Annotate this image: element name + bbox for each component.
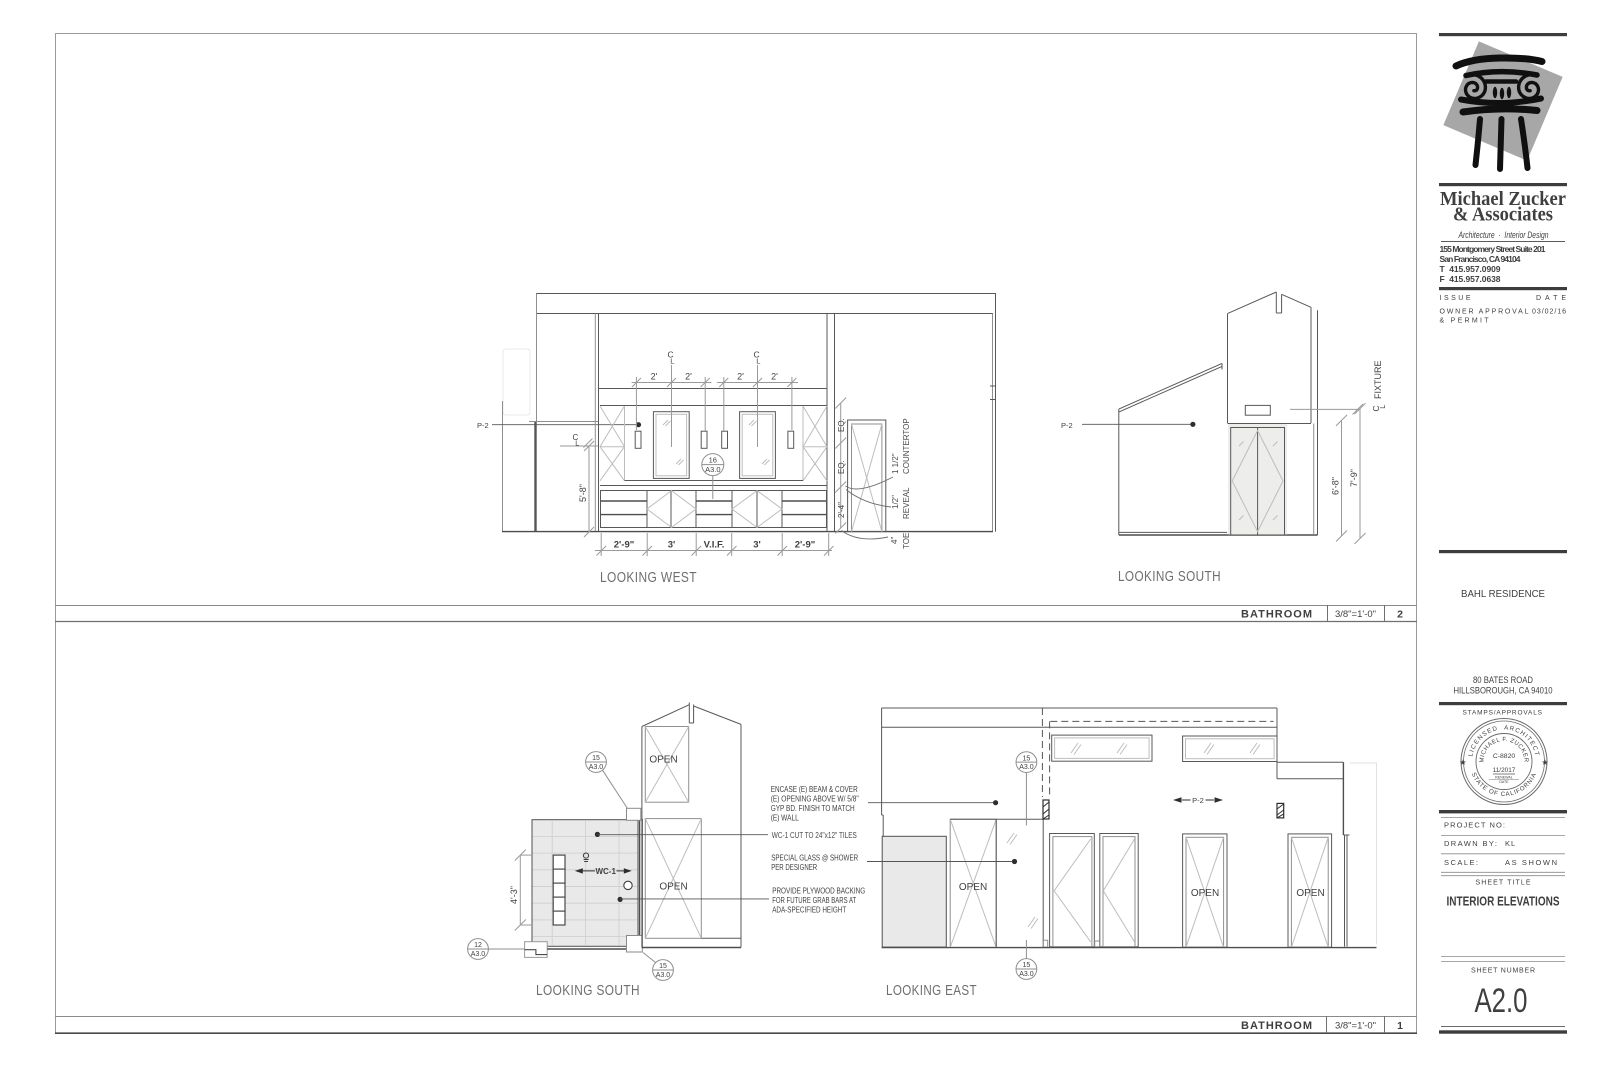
- svg-text:(E) OPENING ABOVE W/ 5/8": (E) OPENING ABOVE W/ 5/8": [771, 795, 859, 804]
- svg-text:ENCASE (E) BEAM & COVER: ENCASE (E) BEAM & COVER: [771, 785, 858, 794]
- svg-text:A3.0: A3.0: [705, 465, 720, 474]
- svg-text:7'-9": 7'-9": [1349, 469, 1359, 487]
- svg-text:2': 2': [737, 372, 744, 382]
- svg-text:155 Montgomery Street Suite 20: 155 Montgomery Street Suite 201: [1440, 244, 1546, 254]
- svg-text:EQ.: EQ.: [837, 460, 846, 474]
- svg-text:3': 3': [668, 540, 676, 551]
- svg-text:SCALE:: SCALE:: [1444, 858, 1478, 867]
- svg-text:OPEN: OPEN: [649, 755, 677, 766]
- svg-text:L: L: [575, 441, 579, 448]
- svg-text:4'-3": 4'-3": [509, 886, 519, 904]
- svg-text:3/8"=1'-0": 3/8"=1'-0": [1335, 1021, 1376, 1032]
- svg-text:OPEN: OPEN: [1296, 888, 1324, 899]
- svg-text:L: L: [670, 357, 674, 366]
- svg-text:DATE: DATE: [1536, 295, 1566, 302]
- svg-text:2': 2': [771, 372, 778, 382]
- svg-text:P-2: P-2: [477, 421, 489, 430]
- svg-text:5'-8": 5'-8": [578, 484, 588, 502]
- svg-text:3/8"=1'-0": 3/8"=1'-0": [1335, 609, 1376, 620]
- svg-text:REVEAL: REVEAL: [902, 487, 911, 519]
- svg-text:DATE: DATE: [1499, 780, 1509, 784]
- svg-text:BATHROOM: BATHROOM: [1241, 1020, 1313, 1032]
- svg-text:SHEET TITLE: SHEET TITLE: [1476, 880, 1531, 887]
- svg-text:OPEN: OPEN: [659, 882, 687, 893]
- svg-text:San Francisco, CA 94104: San Francisco, CA 94104: [1440, 254, 1521, 264]
- svg-text:P-2: P-2: [1061, 421, 1073, 430]
- svg-text:OPEN: OPEN: [959, 882, 987, 893]
- svg-text:★: ★: [1459, 758, 1466, 767]
- svg-text:A3.0: A3.0: [471, 951, 486, 958]
- svg-text:3': 3': [753, 540, 761, 551]
- svg-text:1/2": 1/2": [891, 495, 900, 509]
- svg-text:L: L: [1378, 405, 1387, 409]
- svg-text:OWNER APPROVAL: OWNER APPROVAL: [1440, 309, 1529, 316]
- svg-text:WC-1: WC-1: [595, 867, 616, 876]
- svg-text:LOOKING WEST: LOOKING WEST: [600, 569, 697, 586]
- svg-text:KL: KL: [1505, 839, 1516, 848]
- svg-text:GYP BD. FINISH TO MATCH: GYP BD. FINISH TO MATCH: [771, 804, 855, 813]
- svg-text:HILLSBOROUGH, CA 94010: HILLSBOROUGH, CA 94010: [1454, 686, 1553, 696]
- svg-text:V.I.F.: V.I.F.: [704, 540, 725, 551]
- svg-text:6'-8": 6'-8": [1331, 477, 1341, 495]
- svg-text:T 415.957.0909: T 415.957.0909: [1440, 264, 1501, 274]
- svg-text:15: 15: [1023, 962, 1031, 969]
- svg-text:1 1/2": 1 1/2": [891, 453, 900, 474]
- svg-text:L: L: [756, 357, 760, 366]
- svg-text:2'-4": 2'-4": [837, 502, 846, 518]
- svg-text:2': 2': [651, 372, 658, 382]
- svg-text:15: 15: [1023, 755, 1031, 762]
- svg-text:BATHROOM: BATHROOM: [1241, 609, 1313, 621]
- svg-text:LOOKING SOUTH: LOOKING SOUTH: [1118, 568, 1221, 585]
- svg-text:ISSUE: ISSUE: [1440, 295, 1471, 302]
- svg-text:LOOKING EAST: LOOKING EAST: [886, 982, 977, 999]
- svg-text:A3.0: A3.0: [1019, 971, 1034, 978]
- svg-text:RENEWAL: RENEWAL: [1495, 776, 1513, 780]
- svg-text:INTERIOR ELEVATIONS: INTERIOR ELEVATIONS: [1447, 894, 1560, 909]
- svg-text:★: ★: [1541, 758, 1548, 767]
- svg-text:15: 15: [659, 963, 667, 970]
- svg-text:PROVIDE PLYWOOD BACKING: PROVIDE PLYWOOD BACKING: [772, 887, 865, 896]
- svg-text:FOR FUTURE GRAB BARS AT: FOR FUTURE GRAB BARS AT: [772, 896, 856, 905]
- svg-text:LOOKING SOUTH: LOOKING SOUTH: [536, 982, 640, 999]
- svg-text:03/02/16: 03/02/16: [1532, 309, 1566, 316]
- svg-text:WC-1 CUT TO 24"x12" TILES: WC-1 CUT TO 24"x12" TILES: [772, 831, 857, 840]
- svg-text:SHEET NUMBER: SHEET NUMBER: [1471, 968, 1535, 975]
- svg-text:AS SHOWN: AS SHOWN: [1505, 858, 1557, 867]
- svg-text:12: 12: [474, 942, 482, 949]
- svg-text:COUNTERTOP: COUNTERTOP: [902, 418, 911, 474]
- svg-text:15: 15: [592, 755, 600, 762]
- svg-text:F 415.957.0638: F 415.957.0638: [1440, 274, 1501, 284]
- svg-text:STAMPS/APPROVALS: STAMPS/APPROVALS: [1463, 710, 1544, 717]
- svg-text:BAHL RESIDENCE: BAHL RESIDENCE: [1461, 588, 1545, 600]
- svg-text:DRAWN BY:: DRAWN BY:: [1444, 839, 1497, 848]
- svg-text:1: 1: [1397, 1020, 1403, 1032]
- svg-text:PER DESIGNER: PER DESIGNER: [771, 863, 817, 872]
- svg-text:A2.0: A2.0: [1475, 982, 1528, 1020]
- svg-text:& Associates: & Associates: [1453, 205, 1553, 226]
- svg-text:Architecture · Interior Desi: Architecture · Interior Design: [1458, 230, 1549, 241]
- svg-text:PROJECT NO:: PROJECT NO:: [1444, 821, 1505, 830]
- svg-text:80 BATES ROAD: 80 BATES ROAD: [1473, 675, 1533, 685]
- svg-text:A3.0: A3.0: [1019, 764, 1034, 771]
- svg-text:TOE: TOE: [902, 533, 911, 549]
- svg-text:11/2017: 11/2017: [1493, 767, 1516, 774]
- svg-text:FIXTURE: FIXTURE: [1373, 360, 1383, 399]
- svg-text:SPECIAL GLASS @ SHOWER: SPECIAL GLASS @ SHOWER: [771, 854, 858, 863]
- svg-text:EQ.: EQ.: [837, 418, 846, 432]
- svg-text:(E) WALL: (E) WALL: [771, 814, 799, 823]
- svg-text:2: 2: [1397, 609, 1403, 621]
- svg-text:& PERMIT: & PERMIT: [1440, 318, 1490, 325]
- svg-text:P-2: P-2: [1192, 796, 1204, 805]
- svg-text:ADA-SPECIFIED HEIGHT: ADA-SPECIFIED HEIGHT: [772, 906, 846, 915]
- svg-text:A3.0: A3.0: [656, 972, 671, 979]
- svg-text:4": 4": [890, 537, 899, 544]
- svg-text:2'-9": 2'-9": [614, 540, 635, 551]
- svg-text:A3.0: A3.0: [589, 764, 604, 771]
- svg-text:2': 2': [685, 372, 692, 382]
- svg-text:OPEN: OPEN: [1191, 888, 1219, 899]
- svg-text:2'-9": 2'-9": [795, 540, 816, 551]
- svg-text:C-8820: C-8820: [1493, 753, 1516, 760]
- svg-text:16: 16: [709, 456, 717, 465]
